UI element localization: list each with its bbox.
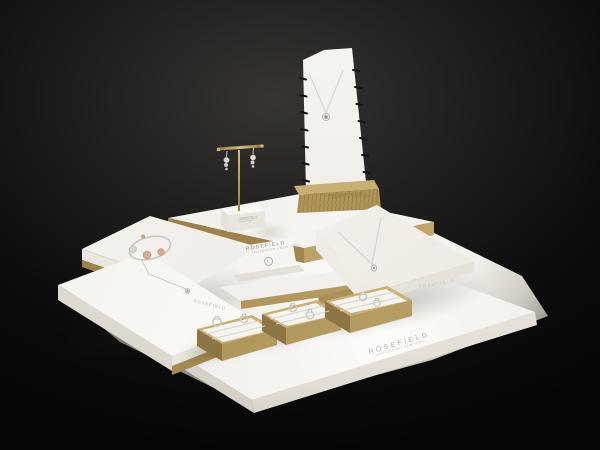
jewelry-display-photo: ROSEFIELD AMSTERDAM | NEW YORK ROSEFIELD… — [0, 0, 600, 450]
vignette — [0, 0, 600, 450]
